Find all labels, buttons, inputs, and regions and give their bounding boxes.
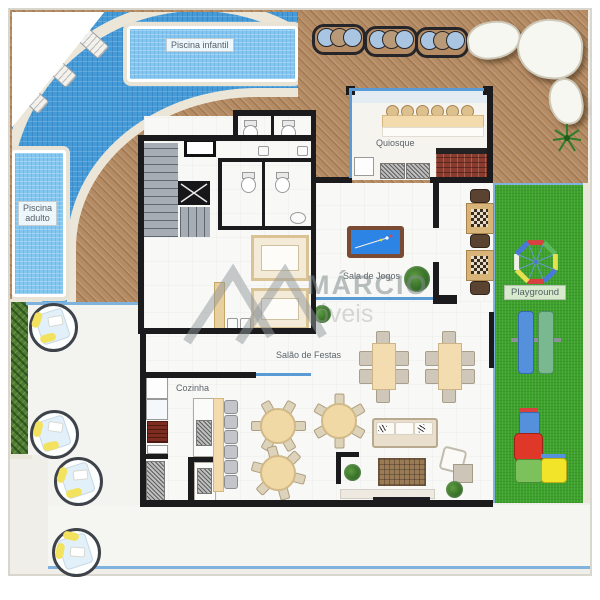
- daybed-pillow: [73, 469, 89, 481]
- billiard-table: [347, 226, 404, 258]
- wall: [433, 183, 439, 228]
- adult-pool-label-line2: adulto: [25, 213, 50, 223]
- play-block-red: [514, 433, 543, 461]
- stove: [147, 421, 168, 443]
- wall: [141, 372, 256, 378]
- stool: [224, 475, 238, 489]
- round-daybed: [52, 528, 101, 577]
- hallway-door: [214, 282, 225, 334]
- elevator-x-icon: [178, 181, 210, 205]
- round-daybed: [29, 303, 78, 352]
- kitchen-counter: [146, 461, 165, 502]
- play-block-blue: [519, 412, 540, 435]
- wall: [138, 135, 316, 141]
- potted-plant: [404, 266, 430, 292]
- lounger-cushion: [343, 28, 362, 47]
- elevator: [178, 181, 210, 205]
- island-sink: [196, 420, 212, 446]
- carousel-icon: [514, 240, 558, 284]
- playground-label: Playground: [504, 285, 566, 300]
- chessboard: [471, 256, 488, 274]
- floor-plan: Piscina infantil Piscina adulto: [0, 0, 600, 600]
- chair: [395, 351, 409, 366]
- wall: [138, 135, 144, 334]
- party-hall-label: Salão de Festas: [276, 350, 341, 360]
- lawn-edge-strip: [583, 183, 590, 503]
- wall: [262, 162, 265, 226]
- kiosk-fridge: [354, 157, 374, 176]
- chess-table: [466, 250, 494, 281]
- kids-pool-label: Piscina infantil: [166, 38, 234, 52]
- wall: [311, 177, 352, 183]
- seesaw-green: [538, 311, 554, 374]
- wall: [140, 500, 493, 507]
- stool: [224, 460, 238, 474]
- double-sun-lounger: [312, 24, 366, 55]
- wall: [336, 452, 341, 484]
- kids-pool: Piscina infantil: [127, 26, 298, 82]
- sofa-pillow: [417, 424, 425, 432]
- kitchen-appliance: [197, 468, 212, 494]
- coffee-table: [378, 458, 426, 486]
- rect-dining-table: [438, 343, 462, 390]
- sink: [297, 146, 308, 156]
- window: [349, 88, 352, 178]
- double-sun-lounger: [415, 27, 469, 58]
- toilet-bowl: [275, 177, 290, 193]
- lounger-cushion: [395, 30, 414, 49]
- window: [316, 297, 433, 300]
- window: [256, 373, 311, 376]
- sauna-bench: [261, 298, 299, 320]
- chair: [359, 369, 373, 384]
- play-block-yellow: [541, 458, 567, 483]
- toilet: [241, 172, 254, 191]
- chess-table: [466, 203, 494, 234]
- stairs-lower: [180, 207, 210, 237]
- sofa-cushion: [395, 422, 414, 435]
- wall: [218, 158, 222, 230]
- stool: [224, 445, 238, 459]
- toilet: [275, 172, 288, 191]
- wall: [218, 158, 316, 162]
- wall: [311, 110, 316, 334]
- chess-chair: [470, 189, 490, 203]
- sink: [258, 146, 269, 156]
- stairs: [144, 143, 178, 237]
- wall: [487, 86, 493, 183]
- kiosk-window-light: [352, 91, 487, 103]
- chair: [376, 388, 390, 403]
- chair: [442, 388, 456, 403]
- fridge: [146, 377, 168, 399]
- hedge: [11, 302, 28, 454]
- kiosk-counter-sink: [380, 163, 405, 179]
- stool: [224, 415, 238, 429]
- potted-plant: [344, 464, 361, 481]
- wall: [433, 295, 457, 304]
- palm-plant-icon: [551, 122, 583, 154]
- adult-pool-label: Piscina adulto: [18, 201, 57, 226]
- terrace-fence-bottom: [48, 566, 590, 569]
- seesaw-blue: [518, 311, 534, 374]
- round-daybed: [54, 457, 103, 506]
- breakfast-bar: [213, 398, 224, 492]
- lawn-fence-top: [493, 183, 583, 185]
- chair: [425, 351, 439, 366]
- round-table: [260, 408, 296, 444]
- chair: [395, 369, 409, 384]
- potted-plant: [446, 481, 463, 498]
- chair: [461, 369, 475, 384]
- adult-pool-label-line1: Piscina: [23, 203, 52, 213]
- wall: [218, 226, 316, 230]
- round-daybed: [30, 410, 79, 459]
- kiosk-bar-ledge: [382, 127, 484, 137]
- lower-terrace: [48, 505, 590, 566]
- sauna-bench: [261, 245, 299, 271]
- chair: [359, 351, 373, 366]
- chair: [461, 351, 475, 366]
- chess-chair: [470, 281, 490, 295]
- elevator-lobby: [184, 139, 216, 157]
- kiosk-counter: [406, 163, 430, 179]
- playground-wall: [489, 312, 494, 368]
- wall: [430, 177, 493, 183]
- chess-chair: [470, 234, 490, 248]
- round-table: [321, 403, 357, 439]
- lounger-cushion: [446, 31, 465, 50]
- chair: [425, 369, 439, 384]
- kitchen-counter-small: [147, 445, 168, 454]
- play-block-green: [515, 459, 543, 483]
- stool: [224, 430, 238, 444]
- sofa: [372, 418, 438, 448]
- window: [352, 88, 484, 91]
- double-sun-lounger: [364, 26, 418, 57]
- daybed-cushion: [42, 440, 59, 451]
- sauna-room: [251, 235, 309, 281]
- wall: [233, 110, 316, 116]
- sink: [290, 212, 306, 224]
- kitchen-wall-stub: [144, 454, 168, 459]
- wall: [140, 334, 146, 507]
- kiosk-label: Quiosque: [376, 138, 415, 148]
- game-room-label: Sala de Jogos: [343, 271, 400, 281]
- wall: [138, 328, 316, 334]
- sauna-room: [251, 288, 309, 330]
- billiard-balls: [351, 230, 400, 254]
- daybed-pillow: [47, 421, 63, 433]
- barbecue-grill: [436, 154, 487, 178]
- daybed-pillow: [70, 546, 86, 557]
- adult-pool: Piscina adulto: [12, 150, 66, 297]
- stool: [224, 400, 238, 414]
- chessboard: [471, 209, 488, 227]
- kitchen-cabinet: [146, 399, 168, 420]
- rect-dining-table: [372, 343, 396, 390]
- kitchen-label: Cozinha: [176, 383, 209, 393]
- round-table: [260, 455, 296, 491]
- toilet-bowl: [241, 177, 256, 193]
